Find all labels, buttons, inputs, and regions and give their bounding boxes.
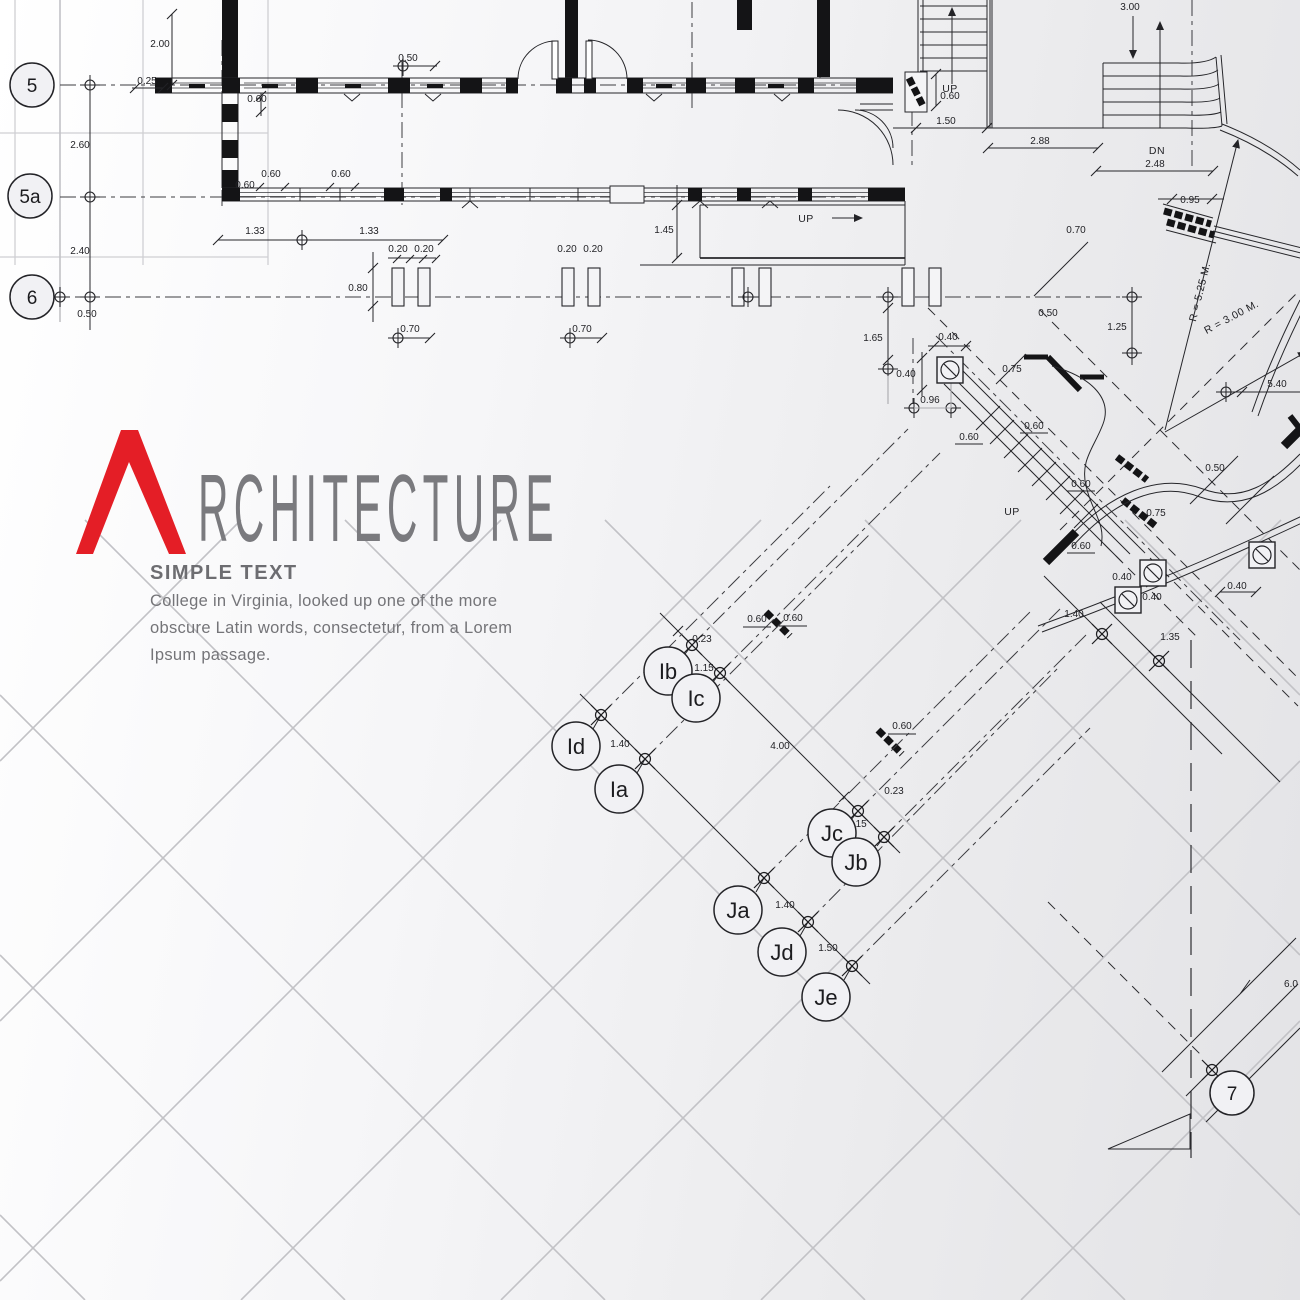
svg-text:Id: Id <box>567 734 585 759</box>
grid-bubble-id: Id <box>552 722 600 770</box>
dim-label: 0.60 <box>1071 479 1091 490</box>
svg-text:Ia: Ia <box>610 777 629 802</box>
dim-label: 0.20 <box>583 244 603 255</box>
dim-label: 0.60 <box>747 614 767 625</box>
grid-bubble-7: 7 <box>1210 1071 1254 1115</box>
grid-bubble-6: 6 <box>10 275 54 319</box>
svg-text:7: 7 <box>1227 1084 1238 1105</box>
logo-word: RCHITECTURE <box>198 454 559 561</box>
dim-label: 0.23 <box>884 786 904 797</box>
dim-label: 0.25 <box>137 76 157 87</box>
dim-label: 0.95 <box>1180 195 1200 206</box>
grid-bubble-jd: Jd <box>758 928 806 976</box>
svg-text:Je: Je <box>814 985 837 1010</box>
dim-label: 0.70 <box>400 324 420 335</box>
dim-label: 0.50 <box>1038 308 1058 319</box>
blueprint-page: 2.00 0.25 0.60 2.60 0.60 0.60 0.60 1.33 … <box>0 0 1300 1300</box>
grid-bubble-jb: Jb <box>832 838 880 886</box>
radius-outer-label: R = 5.25 M. <box>1187 262 1213 323</box>
grid-bubbles: 5 5a 6 Ib Ic Id Ia Jc Jb Ja Jd Je 7 <box>8 63 1254 1115</box>
dim-label: 1.35 <box>1160 632 1180 643</box>
dim-label: 1.50 <box>818 943 838 954</box>
dim-label: 1.40 <box>610 739 630 750</box>
dim-label: 0.70 <box>1066 225 1086 236</box>
dim-label: 0.60 <box>1071 541 1091 552</box>
dim-label: 0.40 <box>1142 592 1162 603</box>
svg-text:6: 6 <box>27 288 38 309</box>
dim-label: 4.00 <box>770 741 790 752</box>
dim-label: 0.50 <box>1205 463 1225 474</box>
dim-label: 0.60 <box>783 613 803 624</box>
dim-label: 0.40 <box>938 332 958 343</box>
dim-label: 1.40 <box>1064 609 1084 620</box>
dim-label: 0.60 <box>331 169 351 180</box>
dim-label: 0.75 <box>1146 508 1166 519</box>
dim-label: 0.20 <box>414 244 434 255</box>
dim-label: 0.50 <box>77 309 97 320</box>
logo-subtitle: SIMPLE TEXT <box>150 562 298 584</box>
svg-text:Jb: Jb <box>844 850 867 875</box>
up-stair-label: UP <box>942 83 958 95</box>
logo-a-mark <box>76 430 186 554</box>
svg-text:Ib: Ib <box>659 659 677 684</box>
dim-label: 0.80 <box>348 283 368 294</box>
dim-label: 1.33 <box>359 226 379 237</box>
dim-label: 1.25 <box>1107 322 1127 333</box>
svg-text:5a: 5a <box>19 187 41 208</box>
dim-label: 3.00 <box>1120 2 1140 13</box>
dim-label: 1.15 <box>694 663 714 674</box>
dim-label: 2.40 <box>70 246 90 257</box>
floor-plan-walls <box>155 0 1300 416</box>
dim-label: 0.60 <box>959 432 979 443</box>
svg-text:Ic: Ic <box>687 686 704 711</box>
grid-bubble-ic: Ic <box>672 674 720 722</box>
dn-stair-label: DN <box>1149 145 1165 157</box>
dim-label: 2.00 <box>150 39 170 50</box>
dim-label: 0.60 <box>235 180 255 191</box>
svg-text:Jd: Jd <box>770 940 793 965</box>
dim-label: 0.60 <box>1024 421 1044 432</box>
dim-label: 0.40 <box>1227 581 1247 592</box>
logo-block: A RCHITECTURE SIMPLE TEXT College in Vir… <box>0 0 559 664</box>
logo-body-line1: College in Virginia, looked up one of th… <box>150 592 497 610</box>
svg-text:5: 5 <box>27 76 38 97</box>
dim-label: 2.60 <box>70 140 90 151</box>
blueprint-canvas: 2.00 0.25 0.60 2.60 0.60 0.60 0.60 1.33 … <box>0 0 1300 1300</box>
dim-label: 0.60 <box>261 169 281 180</box>
dim-label: 0.60 <box>892 721 912 732</box>
grid-bubble-je: Je <box>802 973 850 1021</box>
grid-bubble-ja: Ja <box>714 886 762 934</box>
grid-bubble-5: 5 <box>10 63 54 107</box>
grid-bubble-5a: 5a <box>8 174 52 218</box>
column-row <box>392 268 941 306</box>
up-ramp-label: UP <box>798 213 814 225</box>
logo-body-line3: Ipsum passage. <box>150 646 271 664</box>
dim-label: 0.50 <box>398 53 418 64</box>
dim-label: 0.70 <box>572 324 592 335</box>
dim-label: 0.20 <box>557 244 577 255</box>
dim-label: 1.65 <box>863 333 883 344</box>
dim-label: 0.75 <box>1002 364 1022 375</box>
grid-bubble-ia: Ia <box>595 765 643 813</box>
dim-label: 0.40 <box>896 369 916 380</box>
dim-label: 1.33 <box>245 226 265 237</box>
dim-label: 0.23 <box>692 634 712 645</box>
dim-label: 2.88 <box>1030 136 1050 147</box>
dim-label: 2.48 <box>1145 159 1165 170</box>
dim-label: 1.45 <box>654 225 674 236</box>
dim-label: 1.40 <box>775 900 795 911</box>
dim-label: 6.0 <box>1284 979 1298 990</box>
dim-label: 1.50 <box>936 116 956 127</box>
svg-text:Jc: Jc <box>821 821 843 846</box>
radius-inner-label: R = 3.00 M. <box>1202 298 1261 337</box>
logo-body-line2: obscure Latin words, consectetur, from a… <box>150 619 512 637</box>
dim-label: 0.40 <box>1112 572 1132 583</box>
dim-label: 0.20 <box>388 244 408 255</box>
dim-label: 0.96 <box>920 395 940 406</box>
dim-label: 5.40 <box>1267 379 1287 390</box>
svg-text:Ja: Ja <box>726 898 750 923</box>
dim-label: 0.60 <box>247 94 267 105</box>
up-wing-label: UP <box>1004 506 1020 518</box>
